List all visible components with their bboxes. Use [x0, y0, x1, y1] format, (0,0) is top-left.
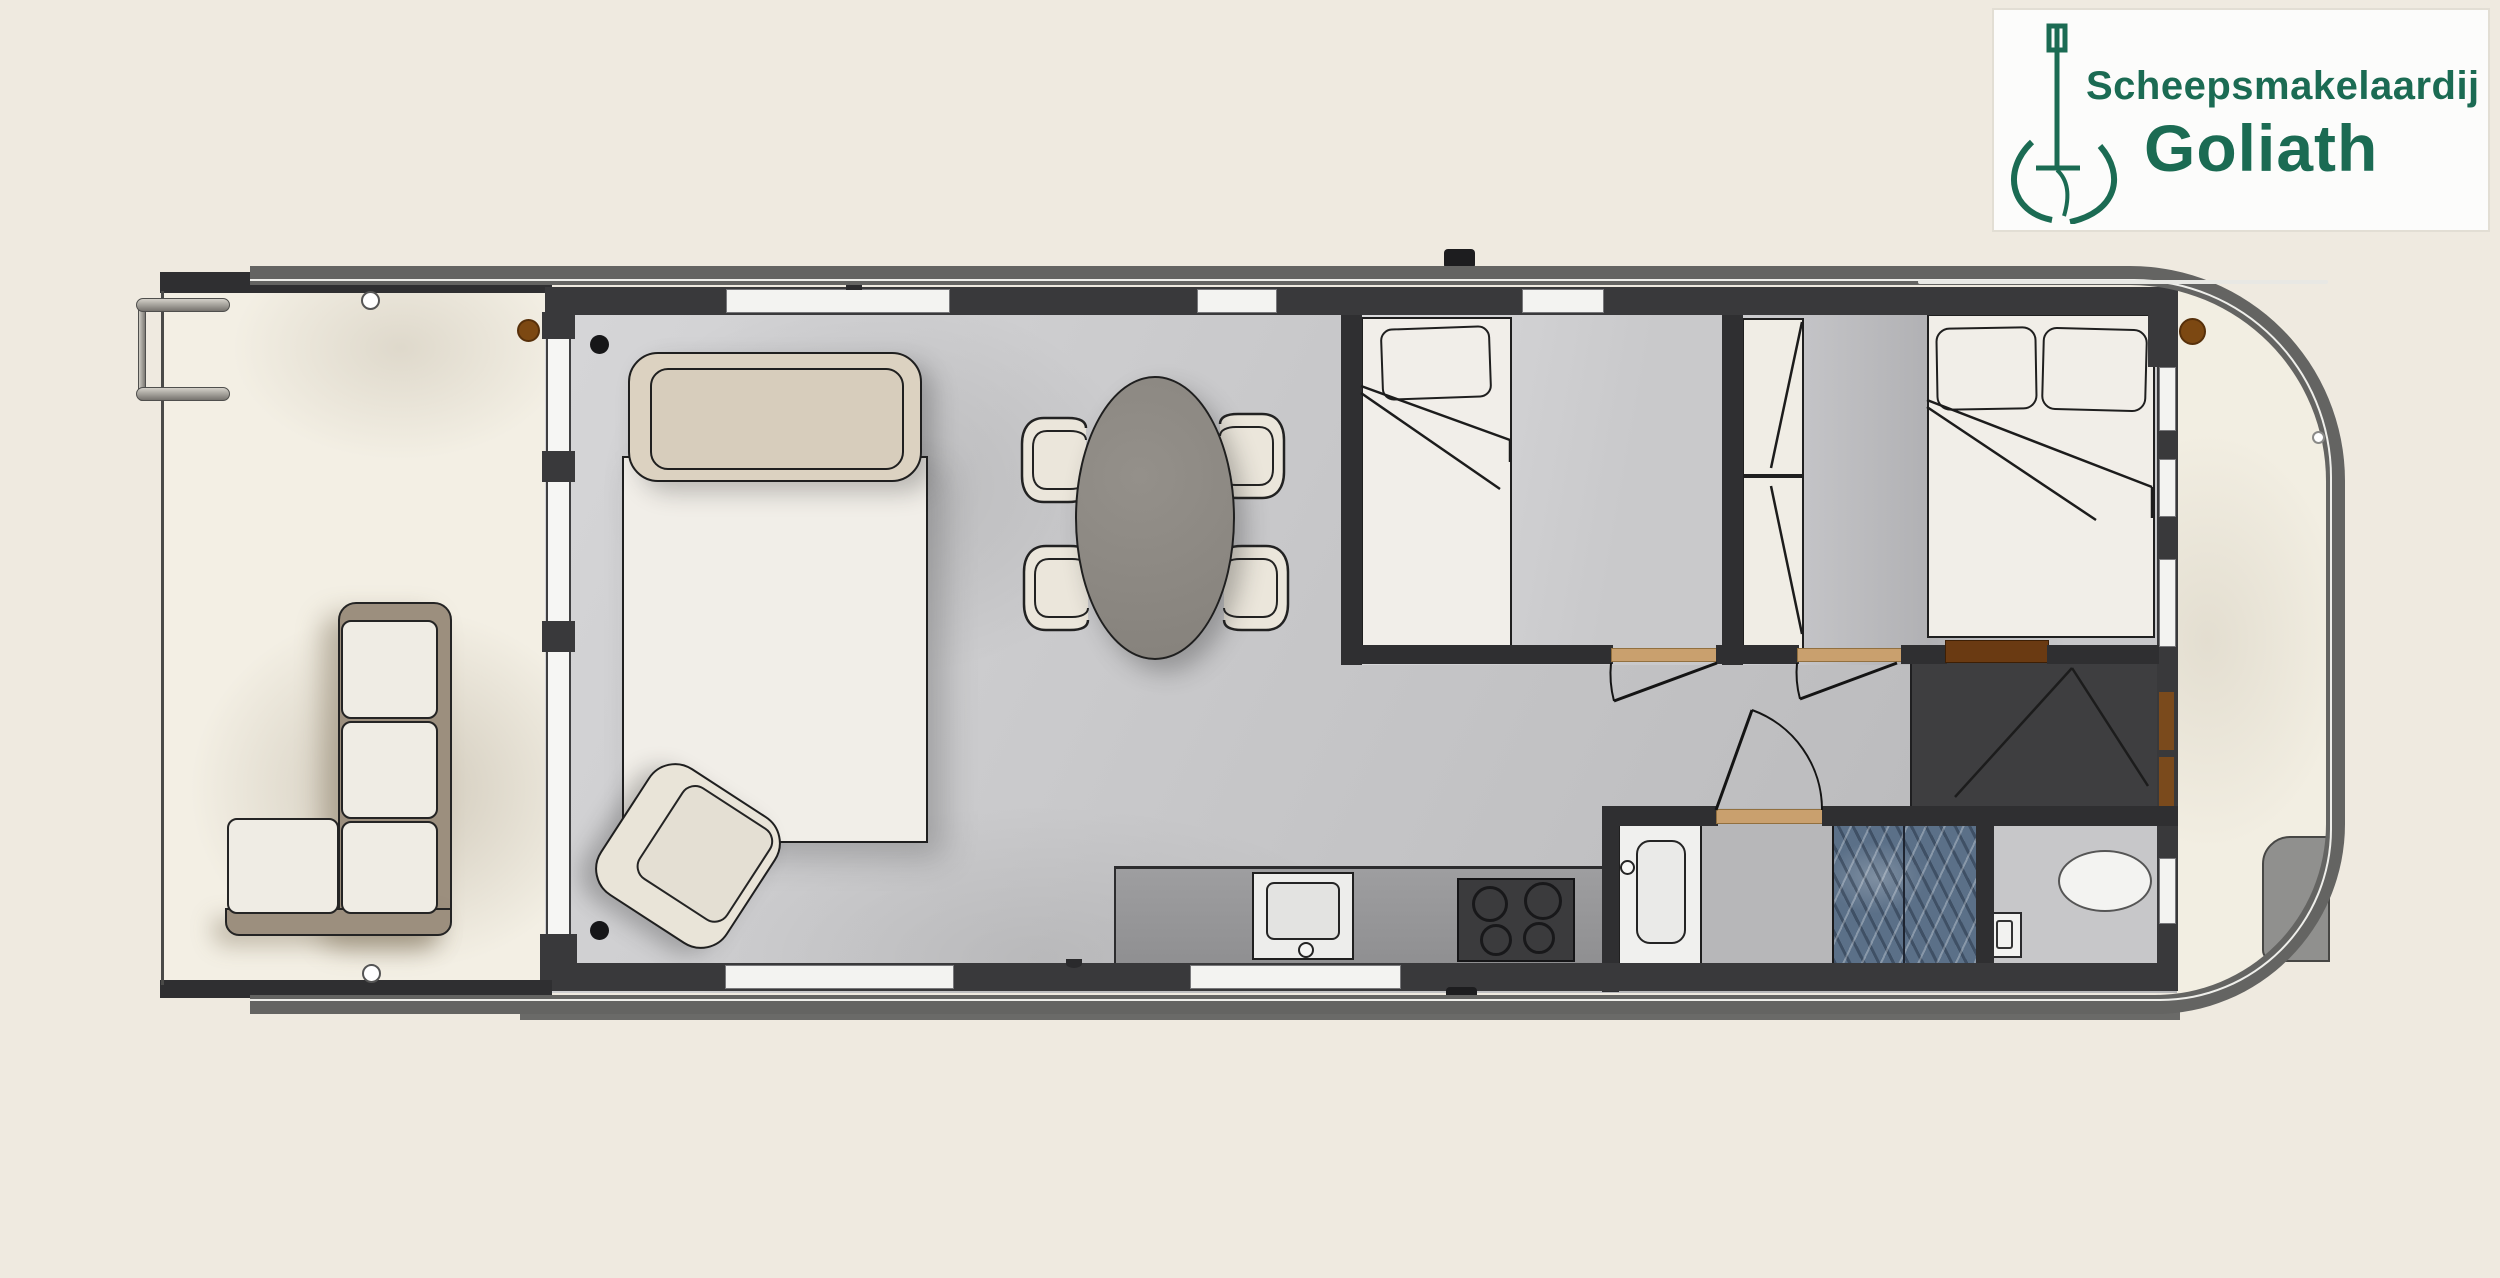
goliath-crane-anchor-icon [2008, 20, 2126, 224]
door-blade [1716, 710, 1752, 810]
broker-name: Scheepsmakelaardij [2086, 64, 2486, 109]
door-blade [1800, 663, 1897, 699]
houseboat-floorplan-canvas: Scheepsmakelaardij Goliath [0, 0, 2500, 1278]
bed-fold-line [1927, 407, 2096, 520]
door-blade [1614, 663, 1717, 701]
door-swing-arc [1610, 663, 1614, 701]
door-swing-arc [1752, 710, 1822, 810]
door-swing-arc [1797, 663, 1800, 699]
bed-fold-line [1361, 393, 1500, 489]
wardrobe-door-line [1771, 486, 1802, 634]
closet-door-line [1955, 668, 2072, 797]
broker-brand: Goliath [2144, 110, 2444, 186]
closet-door-line [2072, 668, 2148, 786]
bed-fold-line [1927, 400, 2152, 487]
bed-fold-line [1361, 386, 1510, 440]
broker-logo-card: Scheepsmakelaardij Goliath [1992, 8, 2490, 232]
wardrobe-door-line [1771, 322, 1802, 468]
